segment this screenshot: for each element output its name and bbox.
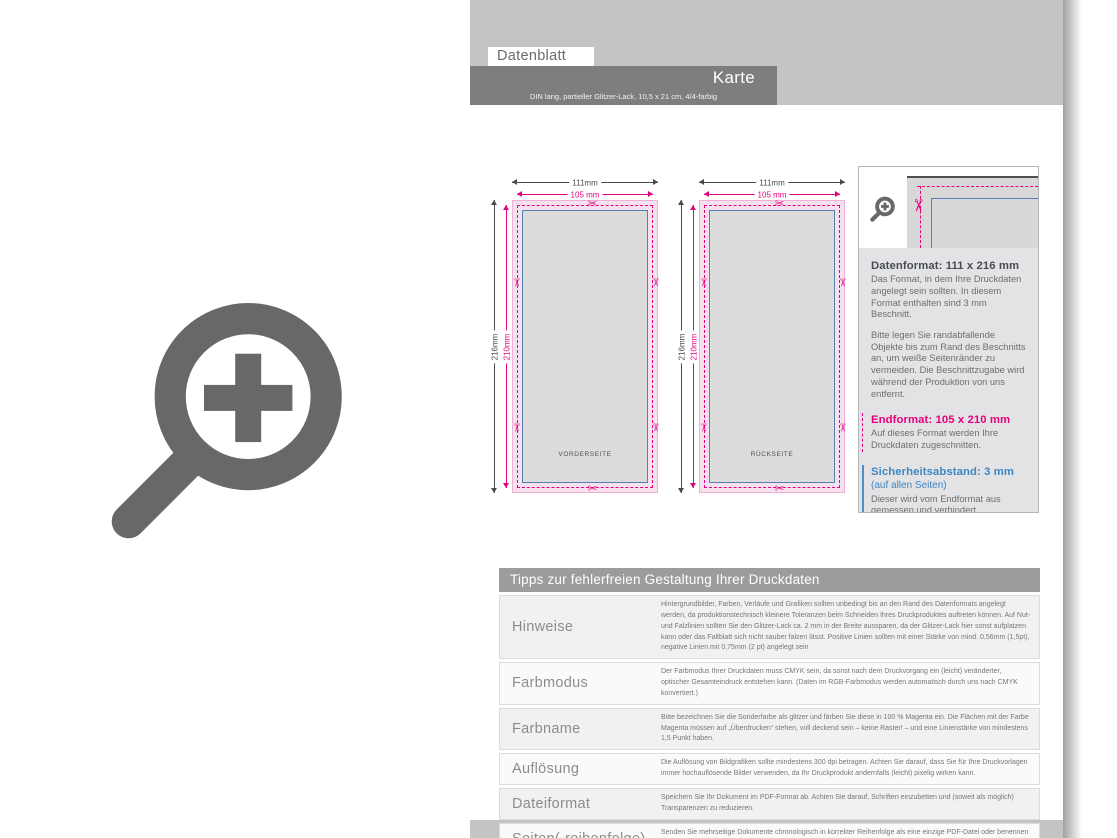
scissors-icon: ✂ [775,199,784,210]
dimension-height-trim: 210mm [689,205,698,488]
scissors-icon: ✂ [588,484,597,495]
table-row: Farbname Bitte bezeichnen Sie die Sonder… [499,708,1040,751]
scissors-icon: ✂ [588,199,597,210]
table-row: Dateiformat Speichern Sie Ihr Dokument i… [499,788,1040,820]
scissors-icon: ✂ [510,423,521,432]
scissors-icon: ✂ [510,278,521,287]
dimension-height-trim-label: 210mm [689,330,698,363]
product-image-panel [0,0,470,838]
back-card: RÜCKSEITE ✂ ✂ ✂ ✂ ✂ ✂ [699,200,845,493]
scissors-icon: ✂ [697,278,708,287]
dimension-height-outer: 216mm [490,200,499,493]
datasheet-page: Datenblatt Karte DIN lang, partieller Gl… [470,0,1063,838]
row-text: Der Farbmodus Ihrer Druckdaten muss CMYK… [661,663,1039,704]
dimension-width-trim: 105 mm [517,190,653,199]
dimension-height-outer-label: 216mm [490,330,499,363]
dimension-height-trim: 210mm [502,205,511,488]
scissors-icon: ✂ [649,423,660,432]
dimension-height-outer-label: 216mm [677,330,686,363]
safety-line [931,198,1038,248]
front-card: VORDERSEITE ✂ ✂ ✂ ✂ ✂ ✂ [512,200,658,493]
sicherheitsabstand-section: Sicherheitsabstand: 3 mm (auf allen Seit… [862,465,1029,513]
scissors-icon: ✂ [836,423,847,432]
sicherheitsabstand-subheading: (auf allen Seiten) [871,480,1029,493]
zoom-plus-icon[interactable] [100,285,360,555]
row-label: Farbmodus [500,663,661,704]
row-text: Senden Sie mehrseitige Dokumente chronol… [661,824,1039,838]
row-text: Bitte bezeichnen Sie die Sonderfarbe als… [661,709,1039,750]
row-text: Die Auflösung von Bildgrafiken sollte mi… [661,754,1039,784]
endformat-heading: Endformat: 105 x 210 mm [871,413,1029,427]
sicherheitsabstand-heading: Sicherheitsabstand: 3 mm [871,465,1029,479]
page-subtitle: DIN lang, partieller Glitzer-Lack, 10,5 … [470,92,777,101]
front-card-diagram: 111mm 105 mm 216mm 210mm VORDERSEITE ✂ ✂… [490,178,660,498]
scissors-icon: ✂ [775,484,784,495]
row-label: Seiten(-reihenfolge) [500,824,661,838]
front-side-label: VORDERSEITE [513,451,657,458]
dimension-height-trim-label: 210mm [502,330,511,363]
datenformat-section: Datenformat: 111 x 216 mm Das Format, in… [871,259,1029,400]
tips-title: Tipps zur fehlerfreien Gestaltung Ihrer … [499,568,1040,592]
trim-line [917,186,1038,187]
trim-line [920,186,921,248]
datenformat-heading: Datenformat: 111 x 216 mm [871,259,1029,273]
dimension-width-outer-label: 111mm [756,178,788,187]
table-row: Auflösung Die Auflösung von Bildgrafiken… [499,753,1040,785]
table-row: Farbmodus Der Farbmodus Ihrer Druckdaten… [499,662,1040,705]
row-label: Dateiformat [500,789,661,819]
back-side-label: RÜCKSEITE [700,451,844,458]
row-label: Farbname [500,709,661,750]
dimension-width-outer: 111mm [512,178,658,187]
tips-table: Tipps zur fehlerfreien Gestaltung Ihrer … [499,568,1040,838]
dimension-height-outer: 216mm [677,200,686,493]
corner-preview-strip: ✂ [859,167,1038,248]
format-info-text: Datenformat: 111 x 216 mm Das Format, in… [859,248,1038,512]
row-label: Hinweise [500,596,661,658]
format-info-box: ✂ Datenformat: 111 x 216 mm Das Format, … [858,166,1039,513]
screen: Datenblatt Karte DIN lang, partieller Gl… [0,0,1117,838]
endformat-section: Endformat: 105 x 210 mm Auf dieses Forma… [862,413,1029,452]
datenblatt-tab-label: Datenblatt [497,48,566,64]
datenformat-paragraph: Das Format, in dem Ihre Druckdaten angel… [871,274,1029,321]
endformat-paragraph: Auf dieses Format werden Ihre Druckdaten… [871,428,1029,451]
page-title: Karte [713,68,755,88]
scissors-icon: ✂ [697,423,708,432]
scissors-icon: ✂ [649,278,660,287]
row-text: Hintergrundbilder, Farben, Verläufe und … [661,596,1039,658]
page-edge-shadow [1063,0,1082,838]
datenformat-paragraph: Bitte legen Sie randabfallende Objekte b… [871,330,1029,400]
table-row: Hinweise Hintergrundbilder, Farben, Verl… [499,595,1040,659]
scissors-icon: ✂ [913,198,924,212]
safety-line [522,210,648,483]
safety-line [709,210,835,483]
back-card-diagram: 111mm 105 mm 216mm 210mm RÜCKSEITE ✂ ✂ ✂ [677,178,847,498]
scissors-icon: ✂ [836,278,847,287]
datenblatt-tab[interactable]: Datenblatt [488,47,594,66]
table-row: Seiten(-reihenfolge) Senden Sie mehrseit… [499,823,1040,838]
dimension-width-trim-label: 105 mm [755,190,790,199]
corner-preview: ✂ [907,176,1038,248]
sicherheitsabstand-paragraph: Dieser wird vom Endformat aus gemessen u… [871,494,1029,513]
row-label: Auflösung [500,754,661,784]
dimension-width-trim: 105 mm [704,190,840,199]
dimension-width-trim-label: 105 mm [568,190,603,199]
tips-rows: Hinweise Hintergrundbilder, Farben, Verl… [499,595,1040,838]
magnifier-plus-icon [869,195,897,223]
dimension-width-outer: 111mm [699,178,845,187]
row-text: Speichern Sie Ihr Dokument im PDF-Format… [661,789,1039,819]
title-bar: Karte DIN lang, partieller Glitzer-Lack,… [470,66,777,105]
dimension-width-outer-label: 111mm [569,178,601,187]
